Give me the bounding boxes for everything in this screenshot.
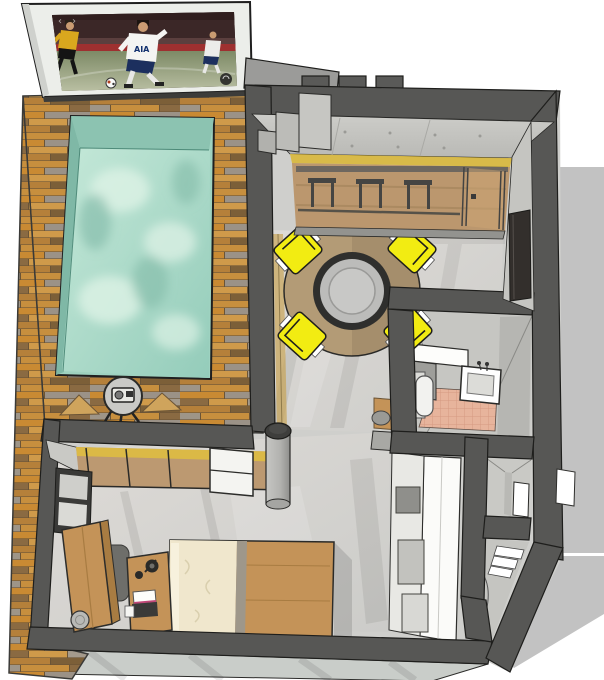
cabinet-niche — [402, 594, 428, 632]
radio-panel — [126, 391, 133, 397]
bed — [168, 540, 352, 640]
toilet — [414, 372, 433, 418]
window-cutout — [556, 469, 575, 506]
kitchen-stool — [372, 411, 390, 425]
pool-inner-wall-top — [71, 116, 214, 150]
tv-nav-next: › — [72, 16, 76, 27]
tv-picture: AIA ‹ › — [48, 8, 240, 95]
floorplan-stage: AIA ‹ › — [0, 0, 604, 680]
football — [106, 78, 116, 88]
swimming-pool — [56, 116, 214, 379]
column — [265, 423, 291, 509]
broadcast-badge-icon — [220, 73, 232, 85]
partition-shelf-unit — [210, 448, 253, 496]
bed-blanket-fold — [235, 541, 247, 637]
wall-kitchen-right — [461, 437, 488, 602]
microwave-opening — [398, 540, 424, 584]
jersey-text: AIA — [134, 45, 150, 54]
floorplan-render: AIA ‹ › — [0, 0, 604, 680]
wall-entry-mid — [483, 516, 531, 540]
right-wall-door — [509, 210, 531, 301]
tv-nav-prev: ‹ — [58, 16, 62, 27]
entry-door-opening — [513, 482, 529, 517]
laundry-basket — [71, 611, 89, 629]
tv-screen: AIA ‹ › — [22, 2, 252, 102]
radio-speaker — [115, 391, 123, 399]
oven-opening — [396, 487, 420, 513]
glass-reflection — [292, 163, 510, 231]
